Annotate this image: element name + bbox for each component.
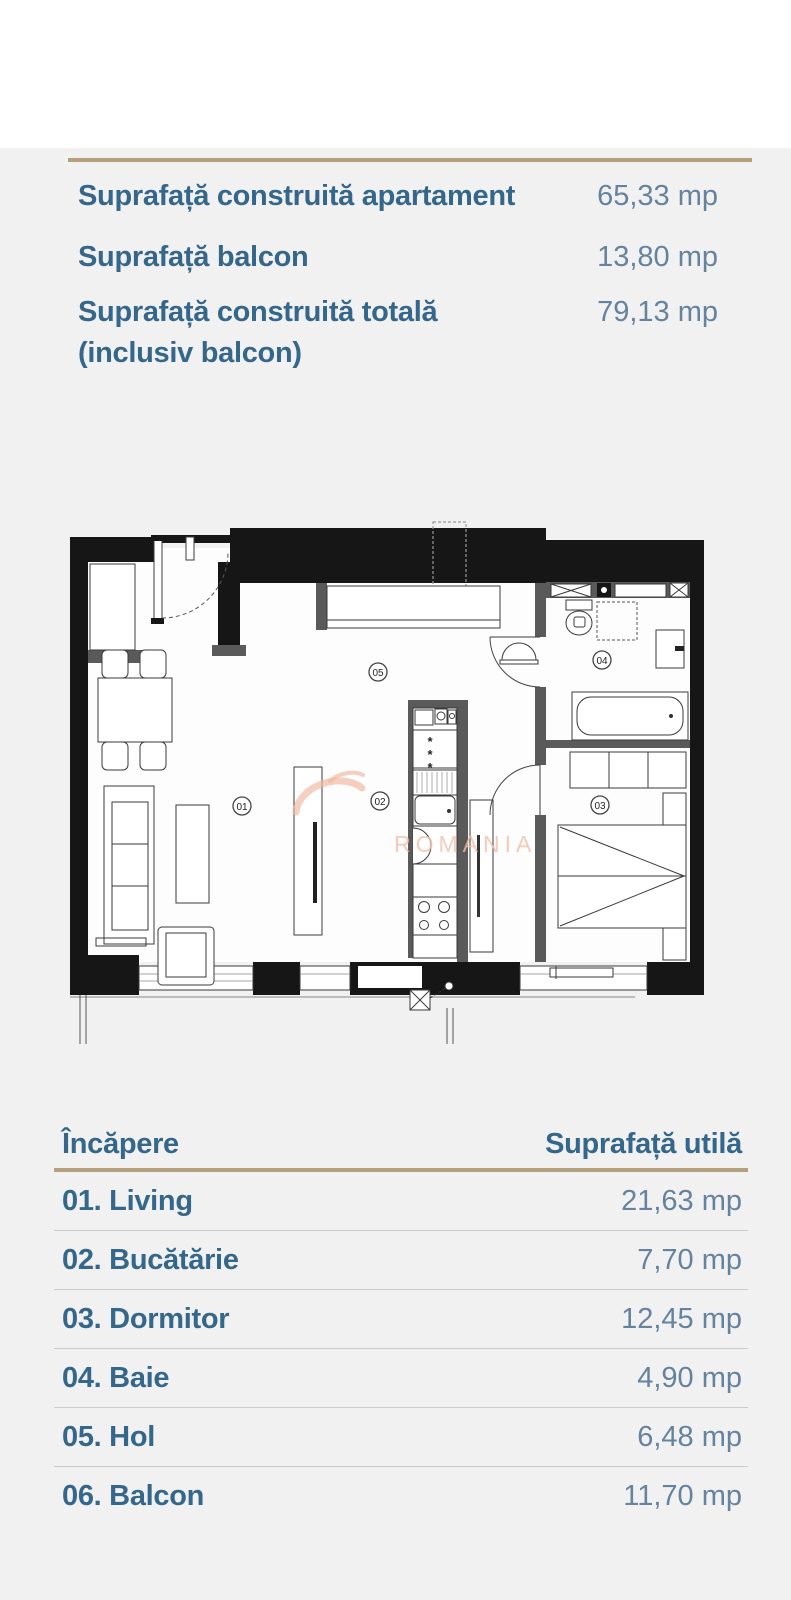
floor-plan-image: * * * bbox=[0, 518, 791, 1052]
railing-lines bbox=[80, 995, 453, 1044]
surface-info-row: Suprafață construită totală (inclusiv ba… bbox=[78, 292, 718, 374]
table-row: 01. Living 21,63 mp bbox=[54, 1172, 748, 1231]
room-name: 01. Living bbox=[62, 1185, 193, 1218]
toilet-tank bbox=[566, 600, 592, 610]
room-area: 12,45 mp bbox=[621, 1303, 742, 1336]
wall-recess bbox=[358, 966, 422, 988]
nightstand bbox=[663, 793, 686, 825]
table-accent-divider bbox=[54, 1168, 748, 1172]
svg-text:02: 02 bbox=[374, 797, 386, 808]
corridor-cabinet bbox=[470, 800, 493, 952]
chair bbox=[102, 650, 128, 678]
room-area: 7,70 mp bbox=[637, 1244, 742, 1277]
column-header-area: Suprafață utilă bbox=[545, 1128, 742, 1161]
surface-value: 65,33 mp bbox=[597, 176, 718, 217]
surface-label: Suprafață construită apartament bbox=[78, 176, 515, 217]
stove bbox=[413, 897, 457, 935]
chair bbox=[140, 742, 166, 770]
surface-info-row: Suprafață balcon 13,80 mp bbox=[78, 237, 718, 278]
svg-text:04: 04 bbox=[596, 656, 608, 667]
room-label-01: 01 bbox=[233, 797, 251, 815]
room-label-04: 04 bbox=[593, 651, 611, 669]
radiator bbox=[550, 968, 613, 977]
table-row: 05. Hol 6,48 mp bbox=[54, 1408, 748, 1467]
svg-text:05: 05 bbox=[372, 668, 384, 679]
toilet bbox=[566, 611, 592, 635]
table-row: 02. Bucătărie 7,70 mp bbox=[54, 1231, 748, 1290]
surface-label: Suprafață balcon bbox=[78, 237, 308, 278]
wardrobe bbox=[570, 752, 686, 788]
watermark-text: ROMANIA bbox=[394, 831, 536, 857]
room-area: 11,70 mp bbox=[623, 1480, 742, 1513]
room-name: 02. Bucătărie bbox=[62, 1244, 239, 1277]
room-name: 04. Baie bbox=[62, 1362, 169, 1395]
room-label-03: 03 bbox=[591, 796, 609, 814]
room-name: 03. Dormitor bbox=[62, 1303, 229, 1336]
surface-info-row: Suprafață construită apartament 65,33 mp bbox=[78, 176, 718, 217]
dining-table bbox=[98, 678, 172, 742]
room-area: 6,48 mp bbox=[637, 1421, 742, 1454]
svg-text:03: 03 bbox=[594, 801, 606, 812]
column-header-room: Încăpere bbox=[62, 1128, 179, 1161]
table-row: 04. Baie 4,90 mp bbox=[54, 1349, 748, 1408]
room-areas-table: Încăpere Suprafață utilă 01. Living 21,6… bbox=[54, 1122, 748, 1525]
svg-text:01: 01 bbox=[236, 802, 248, 813]
coffee-table bbox=[176, 805, 209, 903]
surface-label: Suprafață construită totală (inclusiv ba… bbox=[78, 292, 528, 374]
fridge bbox=[413, 730, 457, 768]
top-accent-divider bbox=[68, 158, 752, 162]
drainboard bbox=[413, 770, 457, 795]
table-row: 03. Dormitor 12,45 mp bbox=[54, 1290, 748, 1349]
chair bbox=[102, 742, 128, 770]
room-label-05: 05 bbox=[369, 663, 387, 681]
surface-value: 13,80 mp bbox=[597, 237, 718, 278]
room-area: 21,63 mp bbox=[621, 1185, 742, 1218]
surface-value: 79,13 mp bbox=[597, 292, 718, 333]
room-area: 4,90 mp bbox=[637, 1362, 742, 1395]
table-row: 06. Balcon 11,70 mp bbox=[54, 1467, 748, 1525]
chair bbox=[140, 650, 166, 678]
table-header: Încăpere Suprafață utilă bbox=[54, 1122, 748, 1166]
table-body: 01. Living 21,63 mp 02. Bucătărie 7,70 m… bbox=[54, 1172, 748, 1525]
surface-info: Suprafață construită apartament 65,33 mp… bbox=[78, 176, 718, 374]
tv bbox=[313, 822, 317, 903]
room-name: 05. Hol bbox=[62, 1421, 155, 1454]
room-label-02: 02 bbox=[371, 792, 389, 810]
room-name: 06. Balcon bbox=[62, 1480, 204, 1513]
nightstand bbox=[663, 928, 686, 960]
